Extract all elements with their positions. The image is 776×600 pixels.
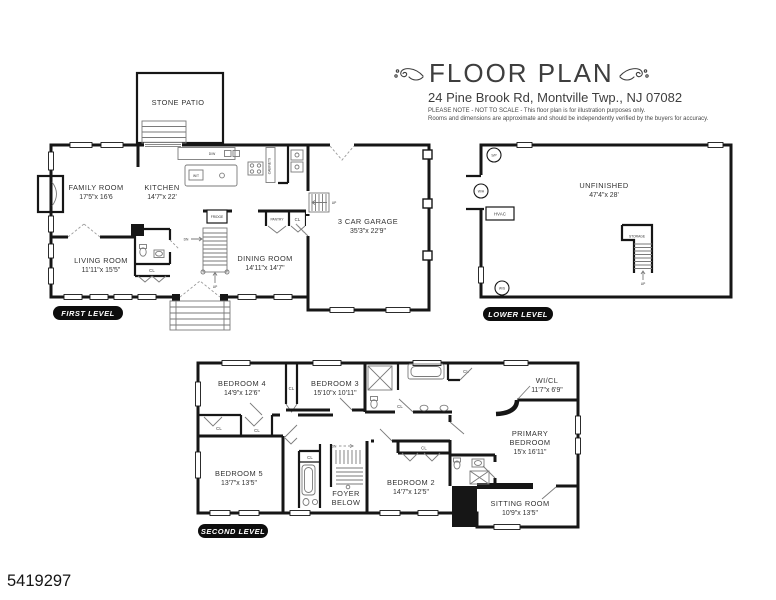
sump-pump: S/P bbox=[487, 148, 501, 162]
hvac-unit: HVAC bbox=[486, 207, 514, 220]
garage-service-door bbox=[330, 143, 354, 161]
stairs-main: UP DN bbox=[184, 228, 229, 289]
sitting-room-door bbox=[542, 487, 556, 499]
tub-icon bbox=[408, 364, 444, 379]
sitting-room-label: SITTING ROOM bbox=[491, 499, 550, 508]
wicl-label: WI/CL bbox=[536, 376, 559, 385]
svg-text:CL: CL bbox=[289, 386, 295, 391]
wicl-dims: 11'7"x 6'9" bbox=[531, 387, 563, 394]
kitchen-counter: D/W bbox=[178, 148, 240, 160]
closet: CL bbox=[286, 363, 297, 412]
unfinished-label: UNFINISHED bbox=[579, 181, 628, 190]
sink-icon bbox=[154, 250, 164, 258]
dishwasher-label: D/W bbox=[209, 152, 216, 156]
wall-block bbox=[452, 486, 477, 527]
window bbox=[479, 267, 484, 283]
garage-label: 3 CAR GARAGE bbox=[338, 217, 398, 226]
laundry bbox=[278, 145, 303, 183]
stairs-back: UP bbox=[306, 191, 337, 214]
stone-patio-label: STONE PATIO bbox=[152, 98, 205, 107]
fridge: FRIDGE bbox=[207, 210, 227, 223]
bedroom3-door bbox=[340, 398, 352, 410]
living-room-dims: 11'11"x 15'5" bbox=[82, 267, 121, 274]
hall-closets: CL CL bbox=[198, 415, 283, 436]
up-label: UP bbox=[332, 201, 337, 205]
dn-label: DN bbox=[184, 238, 189, 242]
hall-bathroom-2: CL bbox=[285, 438, 320, 508]
bedroom4-dims: 14'9"x 12'6" bbox=[224, 390, 260, 397]
garage-jamb bbox=[423, 251, 432, 260]
dining-room-dims: 14'11"x 14'7" bbox=[245, 265, 285, 272]
sink-icon bbox=[440, 405, 448, 411]
closet: CL bbox=[448, 363, 472, 380]
svg-text:CL: CL bbox=[254, 428, 260, 433]
door bbox=[450, 422, 495, 478]
toilet-icon bbox=[454, 458, 461, 469]
window bbox=[517, 143, 532, 148]
kitchen-dims: 14'7"x 22' bbox=[147, 194, 177, 201]
sink-icon bbox=[472, 459, 484, 467]
closet-label: CL bbox=[295, 217, 301, 222]
powder-room: CL bbox=[131, 224, 179, 282]
svg-text:CL: CL bbox=[216, 426, 222, 431]
sitting-room-dims: 10'9"x 13'5" bbox=[502, 510, 538, 517]
pantry-label: PANTRY bbox=[270, 218, 284, 222]
first-level-badge: FIRST LEVEL bbox=[53, 306, 123, 320]
walk-in-closet: WI/CL 11'7"x 6'9" bbox=[496, 376, 578, 414]
foyer-label: FOYER bbox=[332, 489, 359, 498]
lower-level-plan: S/P W/H W/S HVAC STORAGE UP UNFINISHED 4… bbox=[466, 143, 731, 298]
sink-icon bbox=[233, 151, 240, 157]
window bbox=[708, 143, 723, 148]
dn-label: DN bbox=[332, 445, 337, 449]
photo-id: 5419297 bbox=[7, 572, 71, 591]
sink-icon bbox=[312, 499, 317, 504]
lower-level-badge: LOWER LEVEL bbox=[483, 307, 553, 321]
shower-icon bbox=[368, 366, 392, 390]
cabinets-label: CABINETS bbox=[268, 157, 272, 174]
garage-jamb bbox=[423, 150, 432, 159]
up-label: UP bbox=[213, 285, 218, 289]
stone-patio: STONE PATIO bbox=[137, 73, 223, 143]
foyer-label2: BELOW bbox=[332, 498, 361, 507]
closet-label: CL bbox=[307, 455, 313, 460]
kitchen-island: W/T bbox=[185, 165, 237, 186]
water-heater: W/H bbox=[474, 184, 488, 198]
patio-steps bbox=[142, 121, 186, 143]
primary-bath bbox=[454, 458, 490, 484]
svg-text:W/S: W/S bbox=[499, 287, 506, 291]
svg-text:S/P: S/P bbox=[491, 154, 497, 158]
bedroom4-label: BEDROOM 4 bbox=[218, 379, 266, 388]
garage-dims: 35'3"x 22'9" bbox=[350, 228, 386, 235]
storage-stairs: STORAGE UP bbox=[622, 225, 652, 286]
garage-jamb bbox=[423, 199, 432, 208]
water-softener: W/S bbox=[495, 281, 509, 295]
lower-level-walls bbox=[481, 145, 731, 297]
up-label: UP bbox=[641, 282, 646, 286]
pantry: PANTRY CL bbox=[266, 211, 306, 233]
fridge-label: FRIDGE bbox=[211, 215, 224, 219]
sink-icon bbox=[420, 405, 428, 411]
tub-icon bbox=[302, 465, 315, 495]
sink-icon bbox=[225, 151, 232, 157]
primary-bedroom-dims: 15'x 16'11" bbox=[514, 449, 547, 456]
french-doors bbox=[68, 224, 100, 237]
bedroom5-dims: 13'7"x 13'5" bbox=[221, 480, 257, 487]
second-level-plan: CL CL bbox=[196, 361, 581, 530]
closet-label: CL bbox=[397, 404, 403, 409]
second-level-badge: SECOND LEVEL bbox=[198, 524, 268, 538]
family-room-dims: 17'5"x 16'6 bbox=[79, 194, 113, 201]
bedroom2-label: BEDROOM 2 bbox=[387, 478, 435, 487]
kitchen-label: KITCHEN bbox=[144, 183, 179, 192]
primary-bedroom-label: PRIMARY bbox=[512, 429, 548, 438]
stove-icon bbox=[248, 162, 263, 175]
bedroom2-walls: CL bbox=[371, 429, 450, 461]
dining-room-label: DINING ROOM bbox=[237, 254, 292, 263]
toilet-icon bbox=[371, 397, 378, 409]
floor-plan-canvas: STONE PATIO bbox=[0, 0, 776, 600]
front-steps bbox=[170, 301, 230, 330]
primary-bedroom-label2: BEDROOM bbox=[510, 438, 551, 447]
bedroom3-label: BEDROOM 3 bbox=[311, 379, 359, 388]
cabinets: CABINETS bbox=[266, 148, 275, 183]
bedroom3-dims: 15'10"x 10'11" bbox=[313, 390, 357, 397]
living-room-label: LIVING ROOM bbox=[74, 256, 128, 265]
front-door bbox=[172, 281, 228, 301]
stairs-second: DN bbox=[331, 444, 363, 489]
svg-text:HVAC: HVAC bbox=[494, 212, 506, 217]
unfinished-dims: 47'4"x 28' bbox=[589, 192, 619, 199]
patio-door bbox=[144, 143, 182, 148]
bedroom5-label: BEDROOM 5 bbox=[215, 469, 263, 478]
worktop-label: W/T bbox=[193, 174, 199, 178]
toilet-icon bbox=[140, 245, 147, 257]
wall bbox=[450, 415, 495, 486]
hall-bath: CL bbox=[365, 363, 452, 412]
bedroom2-dims: 14'7"x 12'5" bbox=[393, 489, 429, 496]
first-level-plan: STONE PATIO bbox=[38, 73, 432, 330]
svg-text:W/H: W/H bbox=[478, 190, 485, 194]
family-room-label: FAMILY ROOM bbox=[68, 183, 123, 192]
toilet-icon bbox=[303, 499, 309, 506]
closet-label: CL bbox=[149, 268, 155, 273]
shower-icon bbox=[470, 471, 489, 484]
closet-label: CL bbox=[421, 446, 427, 451]
storage-label: STORAGE bbox=[629, 235, 646, 239]
